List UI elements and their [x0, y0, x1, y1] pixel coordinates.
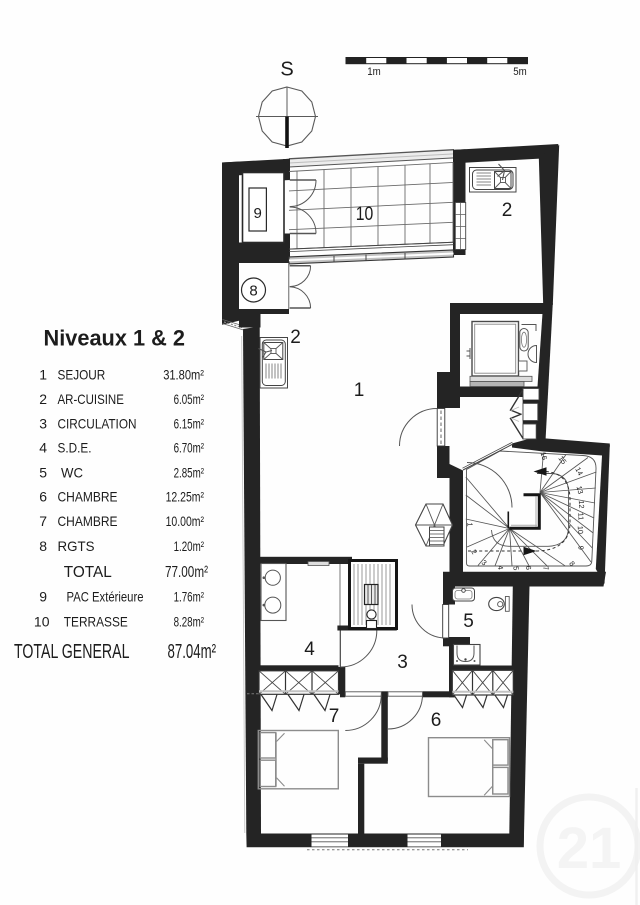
svg-text:5m: 5m [513, 66, 527, 78]
svg-text:2: 2 [290, 327, 301, 348]
svg-text:WC: WC [61, 464, 83, 480]
svg-text:4: 4 [39, 440, 47, 456]
svg-text:10: 10 [576, 526, 585, 535]
svg-text:9: 9 [576, 545, 585, 550]
svg-text:6.05m²: 6.05m² [174, 391, 205, 407]
svg-text:TERRASSE: TERRASSE [64, 613, 128, 629]
svg-text:PAC Extérieure: PAC Extérieure [67, 589, 144, 605]
svg-text:6.70m²: 6.70m² [174, 440, 205, 456]
svg-text:87.04m²: 87.04m² [168, 641, 217, 663]
svg-text:SEJOUR: SEJOUR [58, 366, 106, 382]
svg-text:6: 6 [524, 565, 533, 570]
svg-text:S.D.E.: S.D.E. [58, 440, 92, 456]
svg-text:31.80m²: 31.80m² [163, 366, 204, 382]
svg-text:1.76m²: 1.76m² [174, 589, 205, 605]
svg-text:10.00m²: 10.00m² [166, 513, 205, 529]
svg-text:7: 7 [329, 706, 340, 727]
svg-text:3: 3 [39, 415, 47, 431]
svg-text:10: 10 [34, 613, 50, 629]
svg-text:7: 7 [39, 513, 47, 529]
svg-text:2: 2 [502, 200, 513, 221]
svg-text:CIRCULATION: CIRCULATION [58, 415, 137, 431]
svg-text:1: 1 [39, 366, 47, 382]
svg-text:12: 12 [577, 500, 586, 508]
svg-text:2.85m²: 2.85m² [174, 464, 205, 480]
svg-text:AR-CUISINE: AR-CUISINE [58, 391, 124, 407]
svg-text:5: 5 [463, 611, 474, 632]
svg-text:8: 8 [249, 283, 257, 300]
svg-text:1m: 1m [367, 66, 381, 78]
svg-text:9: 9 [39, 589, 47, 605]
svg-text:11: 11 [576, 512, 585, 520]
svg-text:8.28m²: 8.28m² [174, 613, 205, 629]
svg-text:2: 2 [39, 391, 47, 407]
svg-text:TOTAL: TOTAL [64, 564, 112, 581]
svg-text:3: 3 [397, 652, 408, 673]
svg-text:4: 4 [304, 639, 315, 660]
svg-text:6.15m²: 6.15m² [174, 415, 205, 431]
svg-text:Niveaux 1 & 2: Niveaux 1 & 2 [44, 326, 186, 351]
svg-text:6: 6 [39, 489, 47, 505]
svg-text:S: S [280, 59, 293, 81]
svg-text:1: 1 [354, 380, 365, 401]
svg-text:5: 5 [511, 566, 520, 571]
svg-text:6: 6 [431, 710, 442, 731]
svg-text:12.25m²: 12.25m² [166, 489, 205, 505]
svg-text:RGTS: RGTS [58, 538, 95, 554]
svg-text:8: 8 [39, 538, 47, 554]
svg-text:21: 21 [557, 816, 622, 881]
svg-text:77.00m²: 77.00m² [165, 564, 208, 581]
svg-text:TOTAL GENERAL: TOTAL GENERAL [14, 641, 130, 663]
svg-text:1.20m²: 1.20m² [174, 538, 205, 554]
svg-text:9: 9 [254, 205, 262, 222]
svg-text:5: 5 [39, 464, 47, 480]
svg-text:CHAMBRE: CHAMBRE [58, 489, 118, 505]
svg-text:CHAMBRE: CHAMBRE [58, 513, 118, 529]
svg-text:1: 1 [466, 522, 475, 526]
svg-text:10: 10 [356, 204, 374, 225]
